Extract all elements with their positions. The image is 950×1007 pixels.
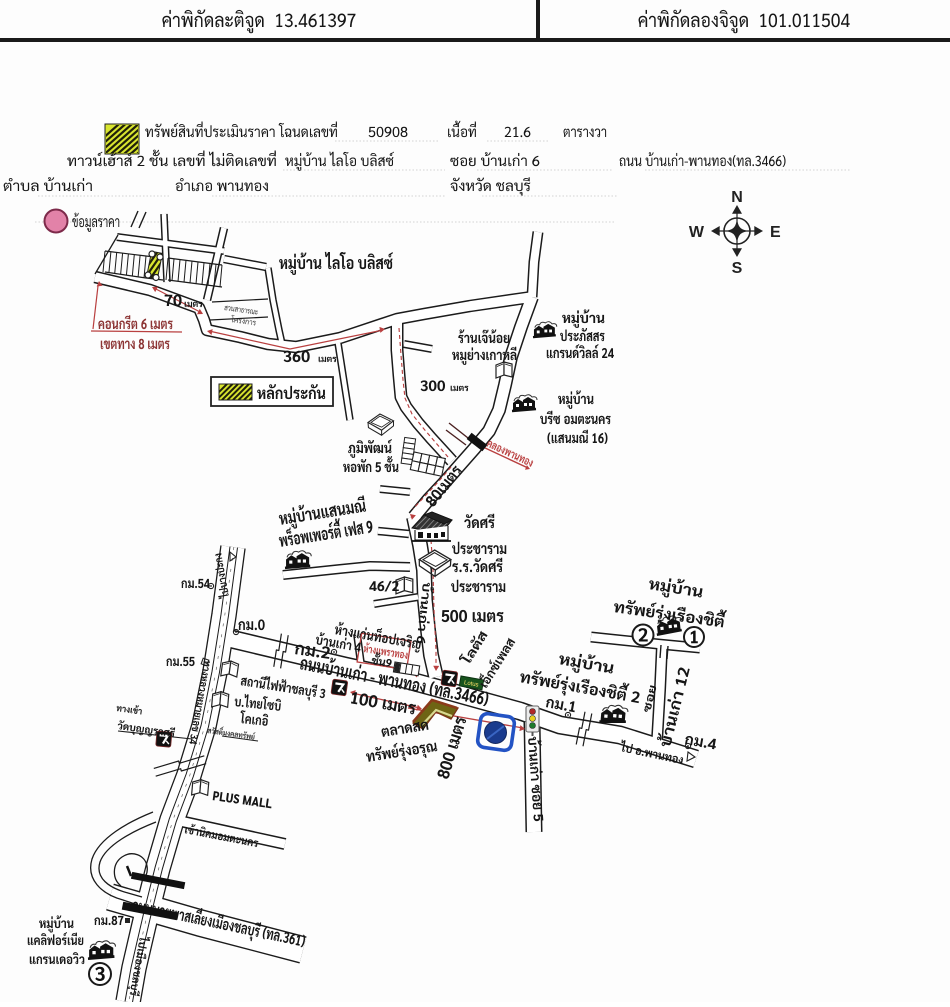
svg-text:E: E [770,224,781,241]
svg-text:S: S [732,260,743,277]
svg-text:W: W [689,224,705,241]
svg-text:N: N [731,189,743,206]
